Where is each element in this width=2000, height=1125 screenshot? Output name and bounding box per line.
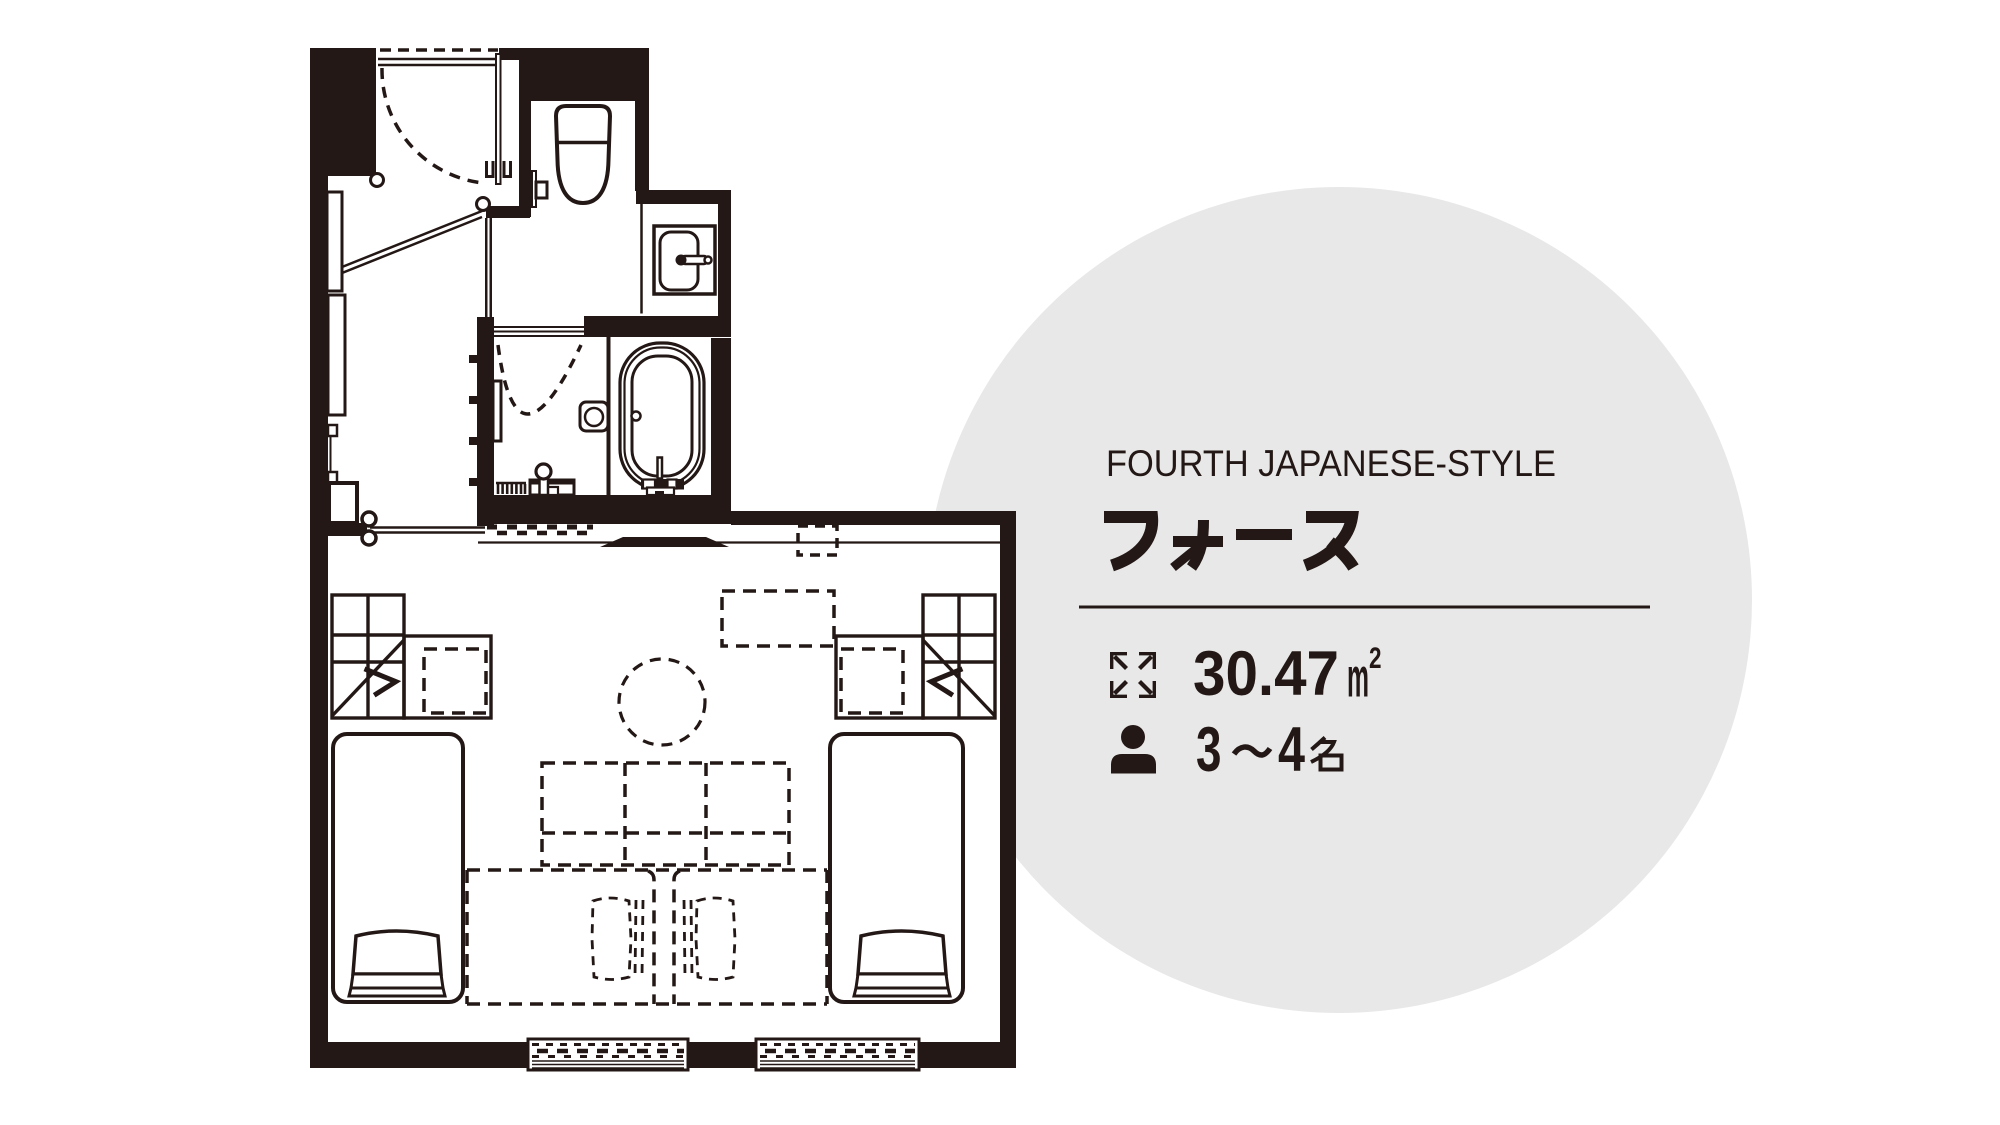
svg-text:4: 4 [1278, 715, 1305, 785]
svg-text:3: 3 [1196, 715, 1222, 785]
svg-text:FOURTH JAPANESE-STYLE: FOURTH JAPANESE-STYLE [1106, 443, 1556, 484]
svg-text:2: 2 [1369, 642, 1382, 675]
svg-text:30.47: 30.47 [1193, 639, 1339, 709]
svg-text:m: m [1347, 646, 1369, 709]
